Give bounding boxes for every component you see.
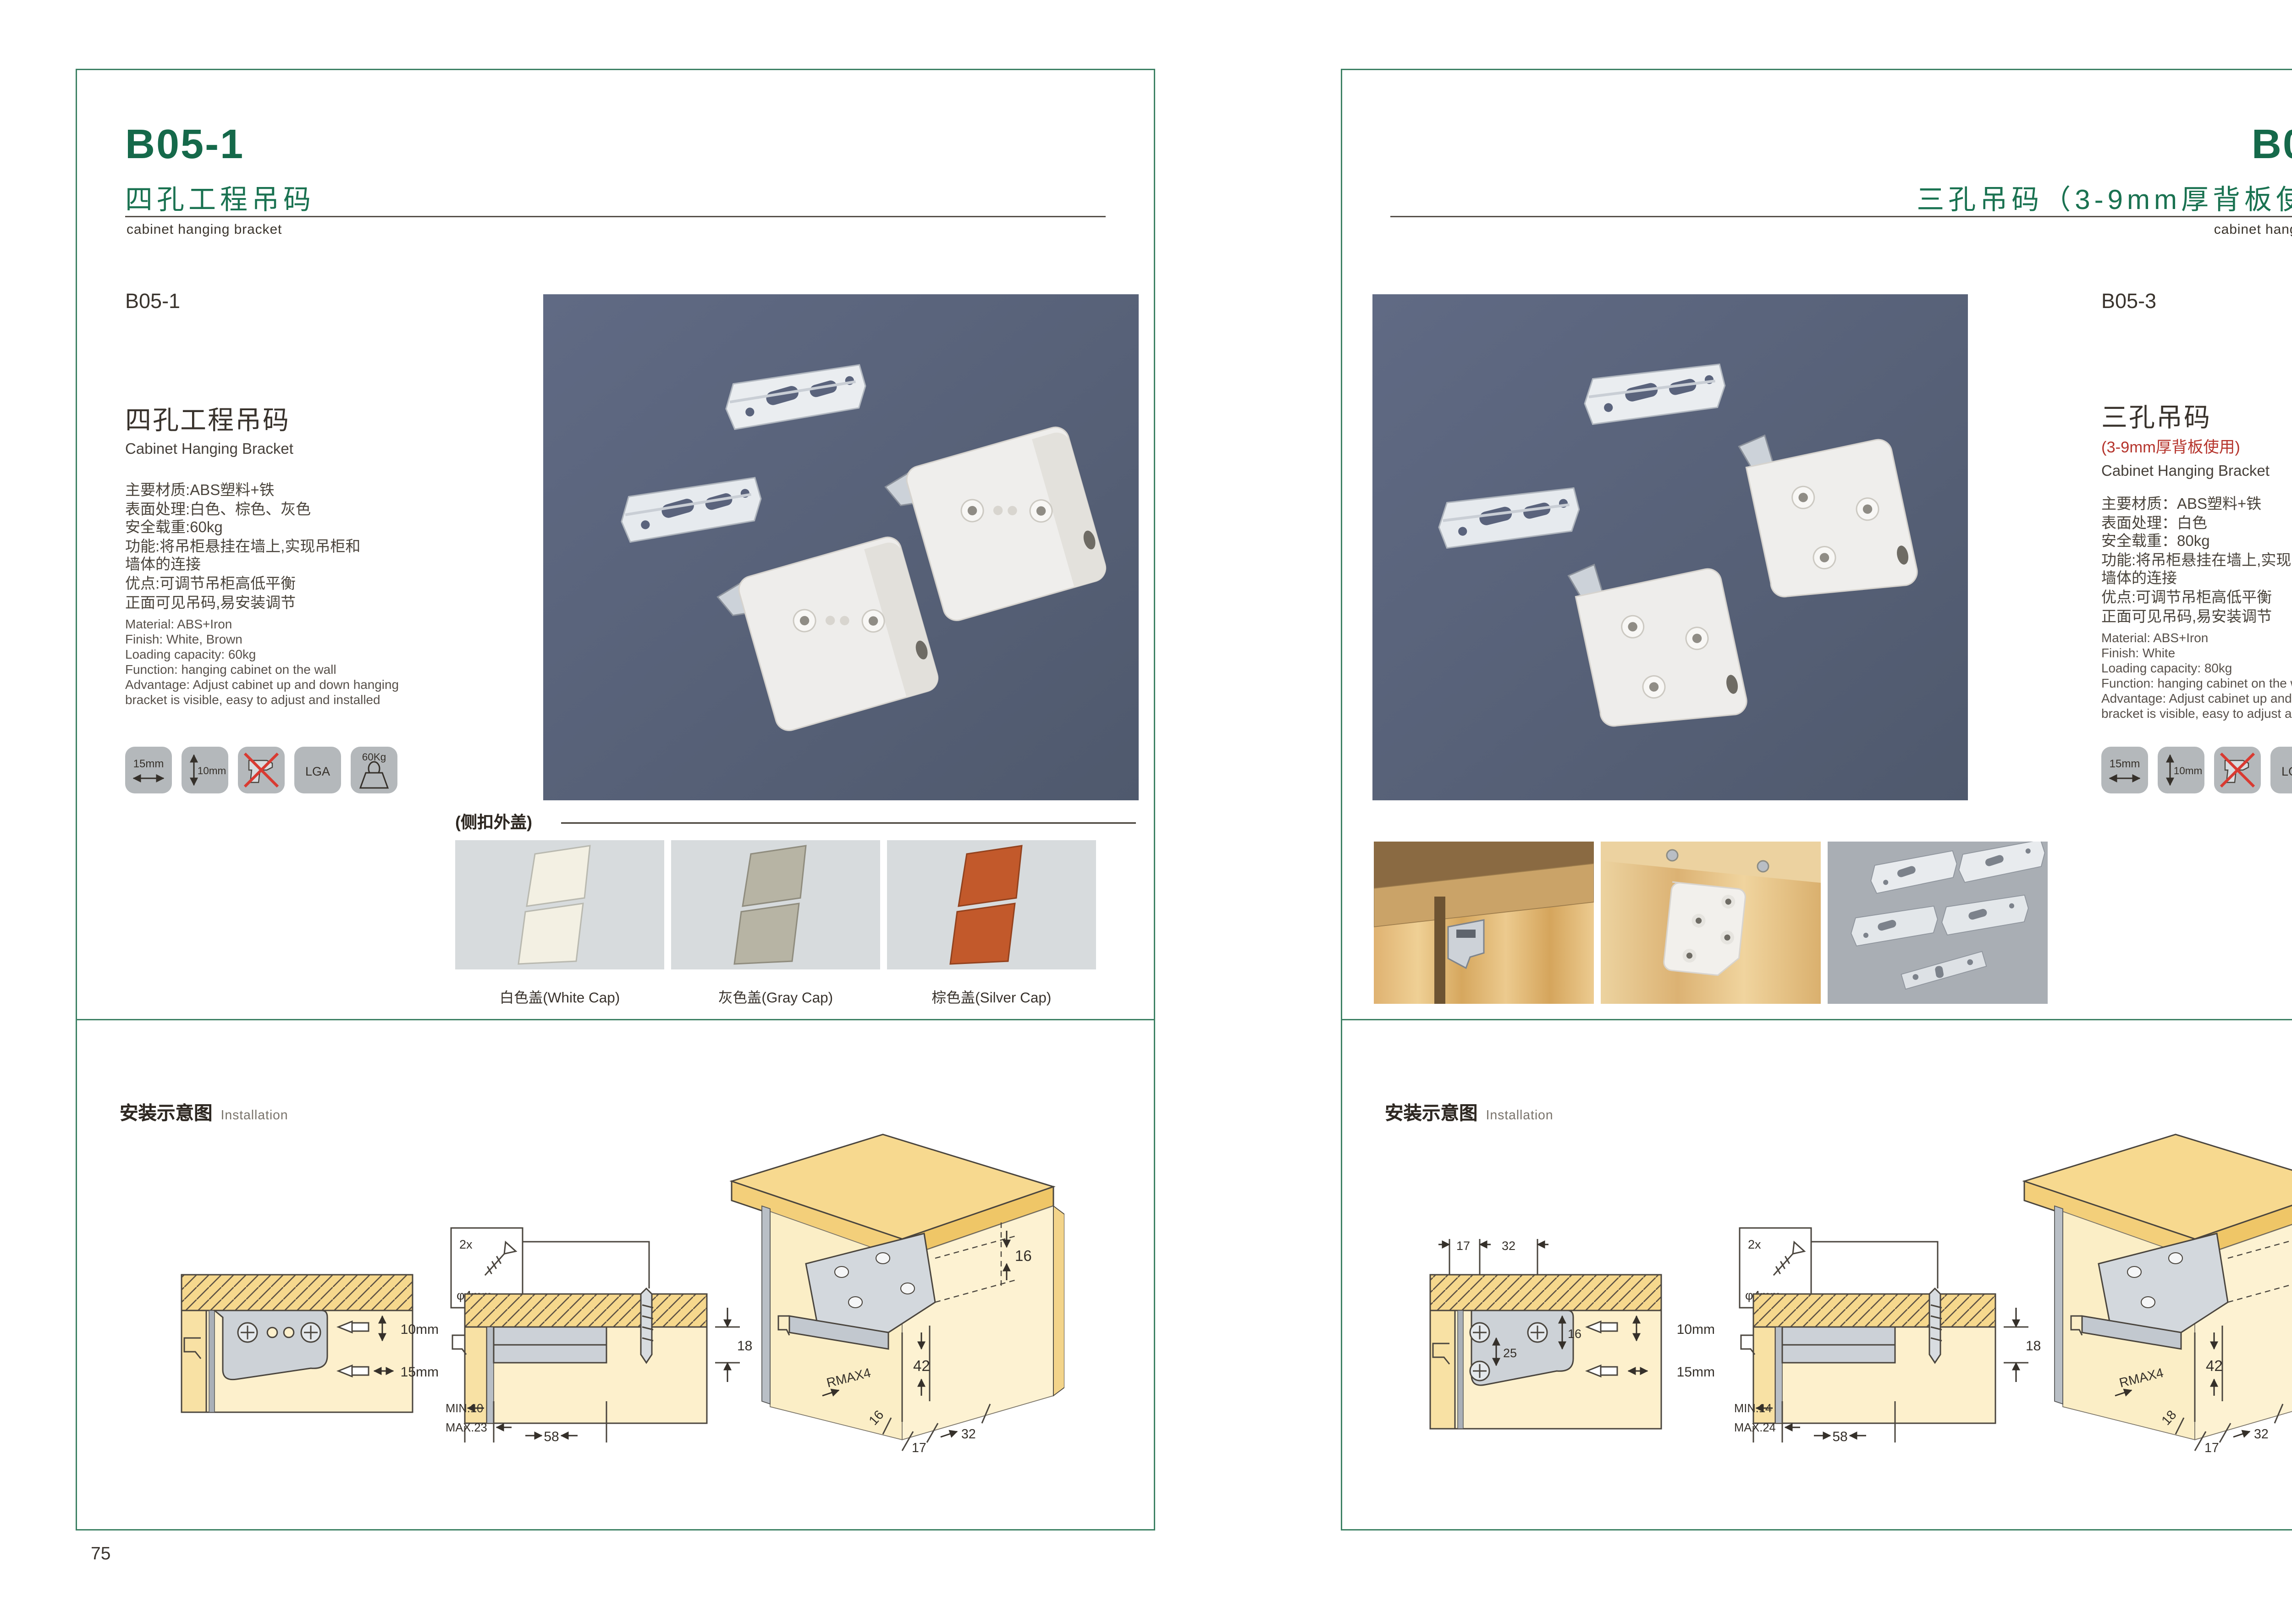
- page-title-cn: 三孔吊码（3-9mm厚背板使用）: [1917, 177, 2292, 217]
- page-title-cn: 四孔工程吊码: [125, 177, 315, 217]
- dim-label: 58: [1832, 1429, 1847, 1444]
- dim-label: 32: [961, 1427, 976, 1442]
- dim-label: 25: [1503, 1346, 1517, 1360]
- height-label: 10mm: [198, 765, 226, 776]
- spec-line: bracket is visible, easy to adjust and i…: [2101, 707, 2292, 722]
- cap-caption: 棕色盖(Silver Cap): [887, 987, 1096, 1008]
- spec-line: 墙体的连接: [125, 557, 360, 576]
- spec-line: Material: ABS+Iron: [125, 617, 399, 633]
- product-name-en: Cabinet Hanging Bracket: [2101, 463, 2270, 480]
- dim-label: 15mm: [1677, 1365, 1715, 1380]
- page-number-left: 75: [91, 1543, 110, 1563]
- dim-label: 10mm: [401, 1322, 439, 1337]
- installation-diagram-section: 2x φ4mm 18: [1734, 1222, 2050, 1449]
- product-code: B05-1: [125, 290, 180, 314]
- width-label: 15mm: [2110, 758, 2140, 770]
- height-label: 10mm: [2174, 765, 2203, 776]
- spec-line: Finish: White, Brown: [125, 633, 399, 648]
- height-10mm-icon: 10mm: [2158, 747, 2204, 793]
- spec-line: Advantage: Adjust cabinet up and down ha…: [2101, 692, 2292, 707]
- screw-count: 2x: [459, 1238, 473, 1251]
- cap-item-silver: 棕色盖(Silver Cap): [887, 840, 1096, 1008]
- product-name-note: (3-9mm厚背板使用): [2101, 436, 2240, 458]
- specs-cn: 主要材质：ABS塑料+铁 表面处理：白色 安全载重：80kg 功能:将吊柜悬挂在…: [2101, 496, 2292, 627]
- width-label: 15mm: [133, 758, 164, 770]
- header-rule: [1390, 216, 2292, 217]
- load-label: 60Kg: [362, 751, 386, 763]
- product-name-en: Cabinet Hanging Bracket: [125, 441, 293, 458]
- page-title: B05-3: [2252, 122, 2292, 169]
- spec-line: Material: ABS+Iron: [2101, 631, 2292, 646]
- dim-label: 15mm: [401, 1365, 439, 1380]
- dim-label: 16: [1568, 1327, 1581, 1341]
- product-photo: [543, 294, 1139, 800]
- installation-title-en: Installation: [1486, 1108, 1554, 1123]
- dim-label: 10mm: [1677, 1322, 1715, 1337]
- cert-label: LGA: [305, 765, 330, 778]
- spec-line: 功能:将吊柜悬挂在墙上,实现吊柜和: [125, 539, 360, 557]
- dim-label: 42: [2206, 1357, 2223, 1374]
- dim-label: MAX.23: [446, 1421, 487, 1434]
- installation-title: 安装示意图Installation: [120, 1097, 288, 1125]
- specs-en: Material: ABS+Iron Finish: White Loading…: [2101, 631, 2292, 722]
- installation-title: 安装示意图Installation: [1385, 1097, 1554, 1125]
- spec-line: 优点:可调节吊柜高低平衡: [2101, 590, 2292, 609]
- installation-title-cn: 安装示意图: [1385, 1103, 1478, 1123]
- dim-label: 16: [1015, 1247, 1032, 1264]
- feature-icon-row: 15mm 10mm LGA: [125, 747, 397, 793]
- specs-en: Material: ABS+Iron Finish: White, Brown …: [125, 617, 399, 708]
- width-15mm-icon: 15mm: [125, 747, 172, 793]
- catalog-page-b05-1: B05-1 四孔工程吊码 cabinet hanging bracket B05…: [76, 69, 1155, 1530]
- section-divider: [1341, 1019, 2292, 1020]
- catalog-spread: B05-1 四孔工程吊码 cabinet hanging bracket B05…: [0, 0, 2292, 1624]
- dim-label: 17: [912, 1441, 926, 1455]
- specs-cn: 主要材质:ABS塑料+铁 表面处理:白色、棕色、灰色 安全载重:60kg 功能:…: [125, 483, 360, 613]
- feature-icon-row: 15mm 10mm LGA: [2101, 747, 2292, 793]
- spec-line: 安全载重：80kg: [2101, 534, 2292, 553]
- screw-count: 2x: [1748, 1238, 1761, 1251]
- spec-line: 正面可见吊码,易安装调节: [2101, 609, 2292, 628]
- height-10mm-icon: 10mm: [182, 747, 228, 793]
- page-subtitle-en: cabinet hanging bracket: [2214, 223, 2292, 238]
- spec-line: Advantage: Adjust cabinet up and down ha…: [125, 678, 399, 693]
- product-name-cn: 四孔工程吊码: [125, 400, 290, 437]
- dim-label: 32: [1502, 1239, 1515, 1253]
- caps-row: 白色盖(White Cap) 灰色盖(Gray Cap) 棕色盖(Silver …: [455, 840, 1096, 1008]
- spec-line: Loading capacity: 80kg: [2101, 661, 2292, 677]
- caps-section-rule: [561, 822, 1136, 824]
- dim-label: 17: [2204, 1441, 2219, 1455]
- installation-diagram-perspective: 16 42 RMAX4 16 17 32: [721, 1126, 1064, 1456]
- section-divider: [76, 1019, 1155, 1020]
- dim-label: 42: [913, 1357, 930, 1374]
- cap-item-white: 白色盖(White Cap): [455, 840, 664, 1008]
- page-subtitle-en: cabinet hanging bracket: [127, 223, 282, 238]
- spec-line: 表面处理：白色: [2101, 515, 2292, 534]
- installation-title-en: Installation: [221, 1108, 288, 1123]
- spec-line: Function: hanging cabinet on the wall: [125, 663, 399, 678]
- spec-line: 优点:可调节吊柜高低平衡: [125, 576, 360, 595]
- page-title: B05-1: [125, 122, 244, 169]
- cap-upper: [743, 846, 806, 906]
- cert-label: LGA: [2281, 765, 2292, 778]
- spec-line: Function: hanging cabinet on the wall: [2101, 677, 2292, 692]
- cap-caption: 白色盖(White Cap): [455, 987, 664, 1008]
- spec-line: 墙体的连接: [2101, 571, 2292, 590]
- cap-lower: [950, 903, 1015, 964]
- dim-label: 58: [544, 1429, 559, 1444]
- installation-diagram-side: 10mm 15mm: [160, 1250, 441, 1436]
- spec-line: 正面可见吊码,易安装调节: [125, 595, 360, 614]
- spec-line: 功能:将吊柜悬挂在墙上,实现吊柜和: [2101, 552, 2292, 571]
- cap-lower: [734, 903, 799, 964]
- header-rule: [125, 216, 1106, 217]
- width-15mm-icon: 15mm: [2101, 747, 2148, 793]
- application-photo-clip: [1374, 842, 1594, 1004]
- no-drill-icon: [238, 747, 285, 793]
- application-photo-row: [1374, 842, 2048, 1004]
- no-drill-icon: [2214, 747, 2261, 793]
- cap-upper: [959, 846, 1022, 906]
- spec-line: 主要材质:ABS塑料+铁: [125, 483, 360, 501]
- spec-line: 主要材质：ABS塑料+铁: [2101, 496, 2292, 515]
- spec-line: Finish: White: [2101, 646, 2292, 661]
- load-60kg-icon: 60Kg: [351, 747, 397, 793]
- spec-line: 表面处理:白色、棕色、灰色: [125, 501, 360, 520]
- lga-cert-icon: LGA: [2270, 747, 2292, 793]
- cap-lower: [518, 903, 583, 964]
- dim-label: MAX.24: [1734, 1421, 1776, 1434]
- product-photo: [1372, 294, 1968, 800]
- cap-item-gray: 灰色盖(Gray Cap): [671, 840, 880, 1008]
- product-name-cn: 三孔吊码: [2101, 397, 2211, 435]
- spec-line: 安全载重:60kg: [125, 520, 360, 539]
- cap-caption: 灰色盖(Gray Cap): [671, 987, 880, 1008]
- installation-diagram-section: 2x φ4mm 18: [446, 1222, 762, 1449]
- installation-title-cn: 安装示意图: [120, 1103, 213, 1123]
- caps-section-label: (侧扣外盖): [455, 810, 532, 833]
- dim-label: 32: [2254, 1427, 2269, 1442]
- dim-label: 17: [1456, 1239, 1470, 1253]
- installation-diagram-perspective: 16 42 RMAX4 18 17 32: [2013, 1126, 2292, 1456]
- lga-cert-icon: LGA: [294, 747, 341, 793]
- catalog-page-b05-3: B05-3 三孔吊码（3-9mm厚背板使用） cabinet hanging b…: [1341, 69, 2292, 1530]
- installation-diagram-side: 17 32 16 25 10mm: [1408, 1228, 1718, 1448]
- spec-line: Loading capacity: 60kg: [125, 648, 399, 663]
- cap-upper: [527, 846, 590, 906]
- application-photo-plates: [1828, 842, 2048, 1004]
- product-code: B05-3: [2101, 290, 2156, 314]
- spec-line: bracket is visible, easy to adjust and i…: [125, 693, 399, 708]
- application-photo-bracket: [1601, 842, 1821, 1004]
